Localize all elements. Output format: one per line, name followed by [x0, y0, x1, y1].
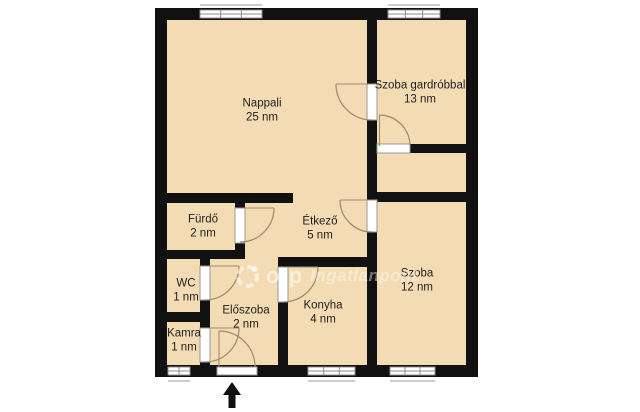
- entrance-arrow-icon: [223, 382, 241, 408]
- floorplan: Nappali 25 nm Szoba gardróbbal 13 nm Für…: [0, 0, 640, 412]
- floorplan-drawing: [0, 0, 640, 412]
